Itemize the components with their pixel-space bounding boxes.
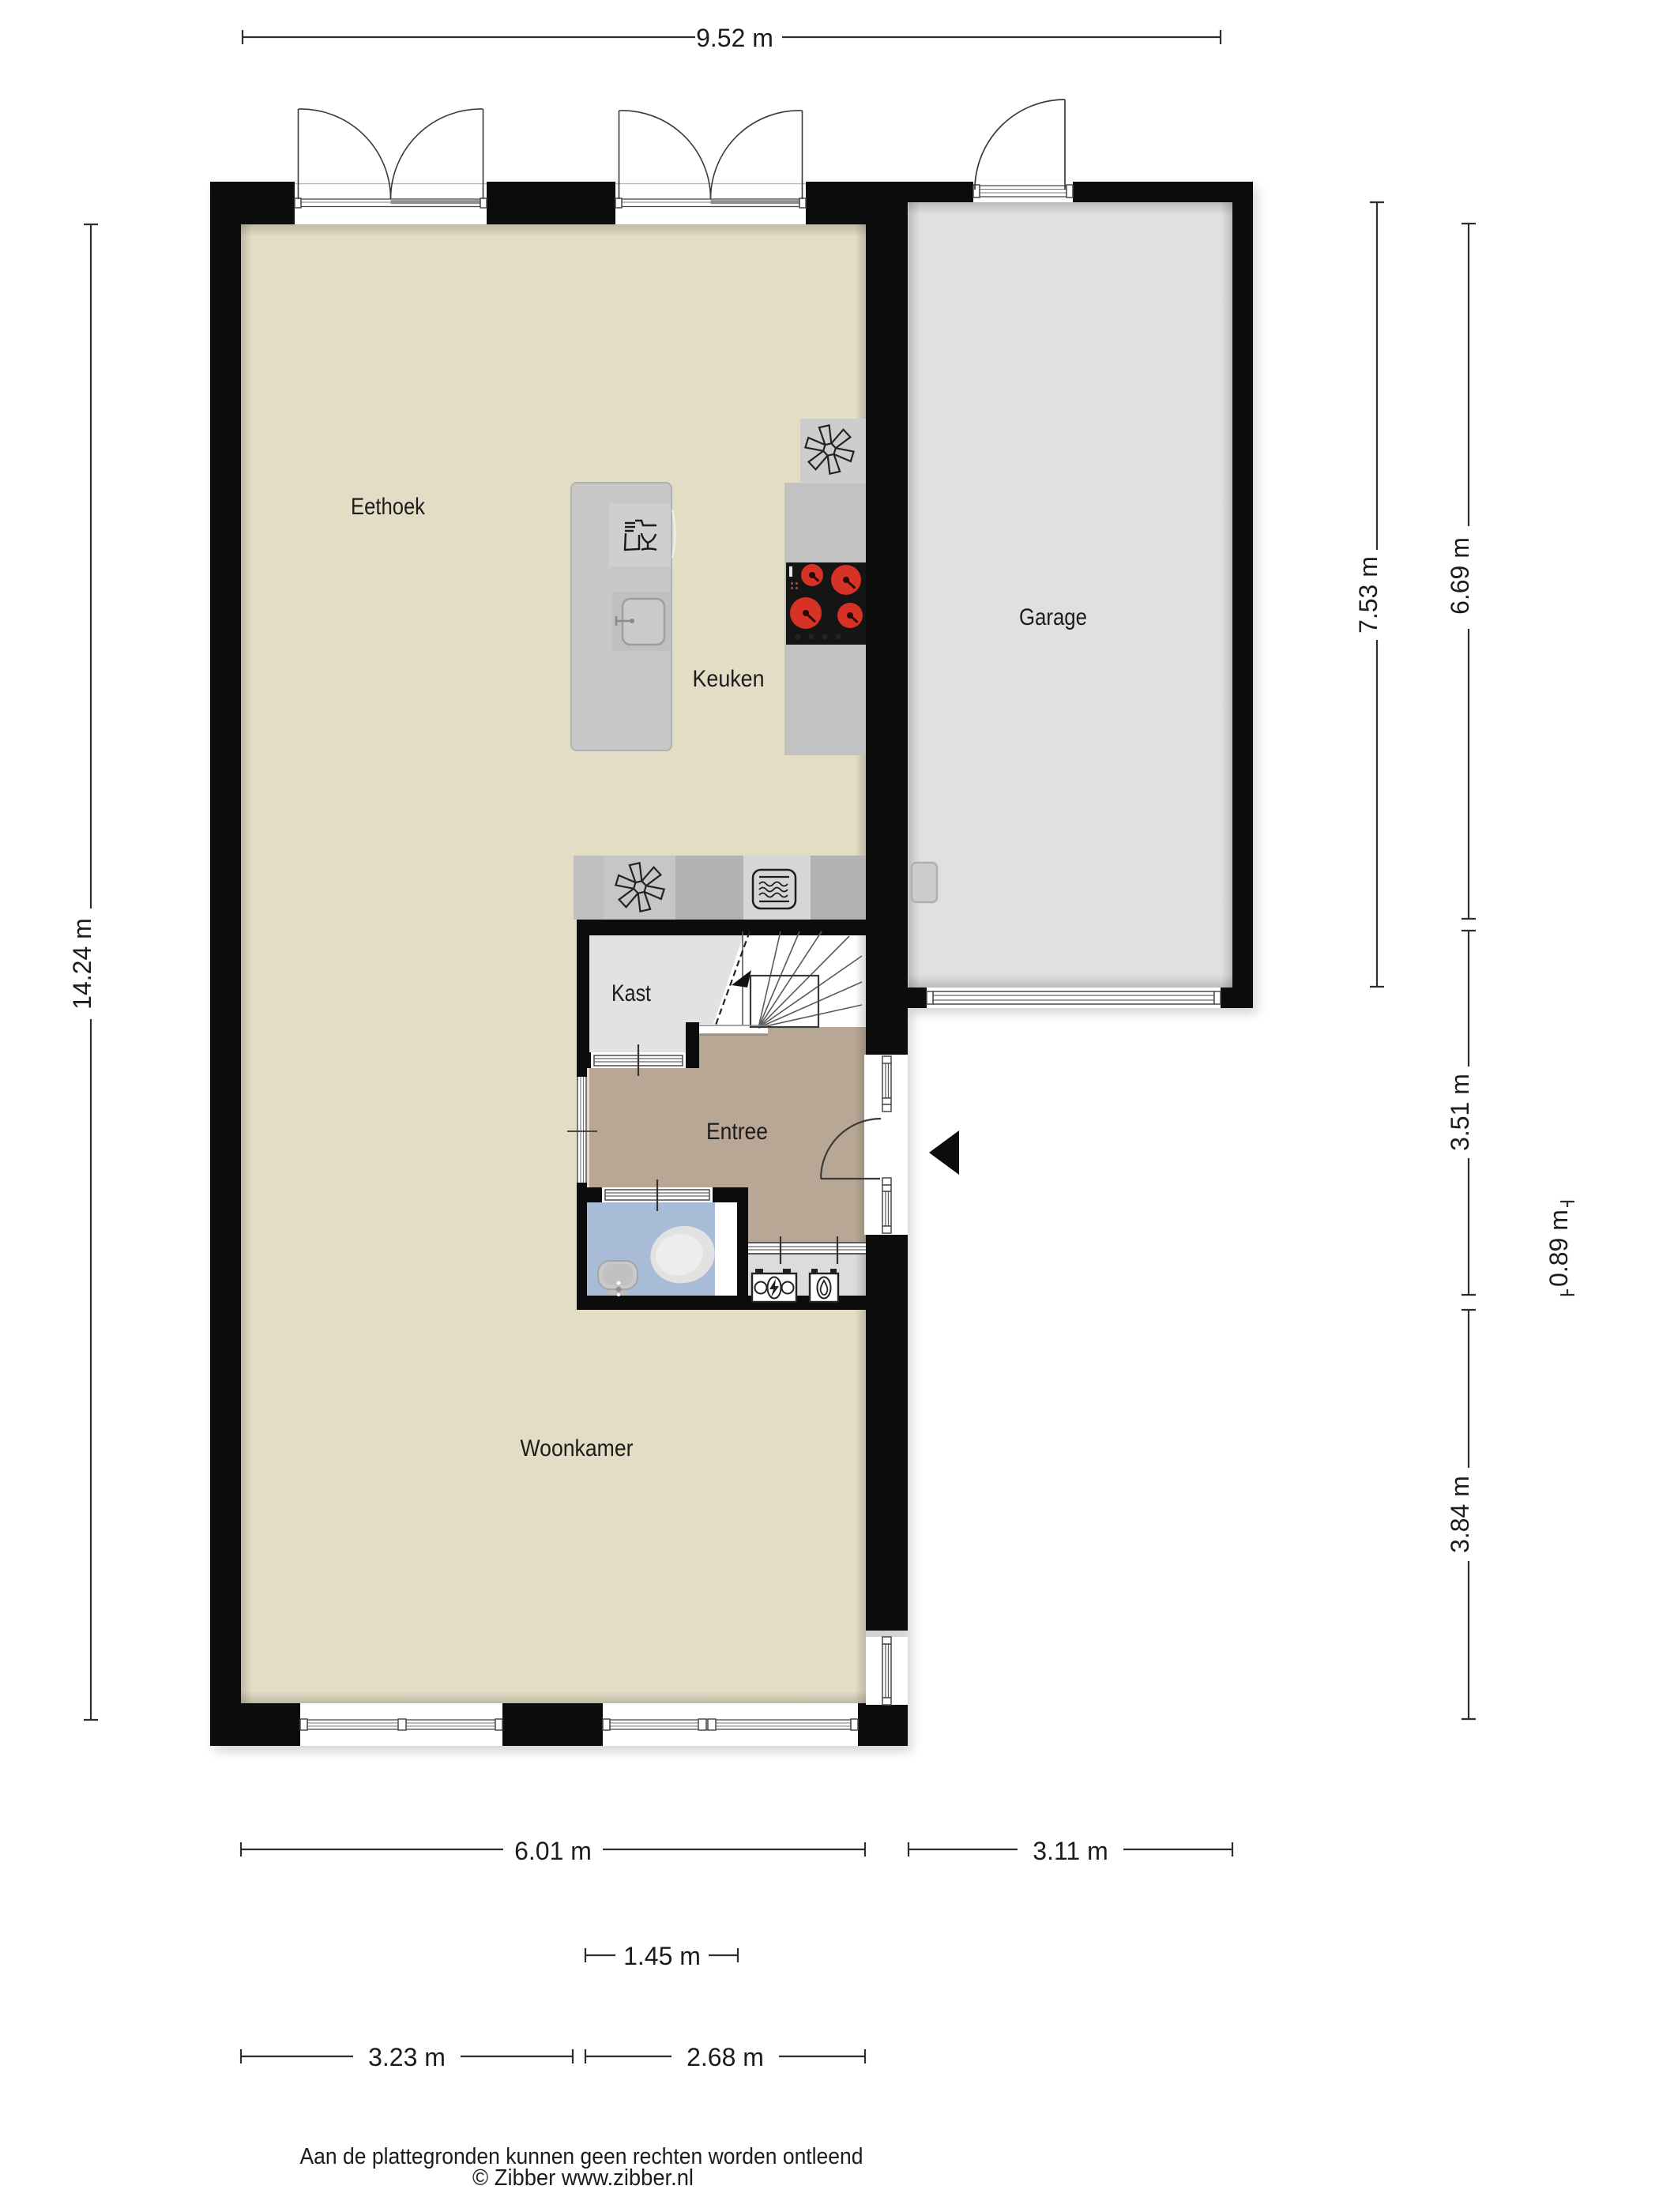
svg-text:Kast: Kast (611, 980, 652, 1006)
svg-text:3.84 m: 3.84 m (1446, 1476, 1474, 1553)
svg-text:Eethoek: Eethoek (351, 494, 426, 520)
svg-text:6.01 m: 6.01 m (514, 1837, 592, 1865)
svg-text:6.69 m: 6.69 m (1446, 537, 1474, 615)
svg-text:9.52 m: 9.52 m (696, 24, 773, 52)
svg-text:Woonkamer: Woonkamer (521, 1435, 634, 1461)
svg-text:© Zibber www.zibber.nl: © Zibber www.zibber.nl (472, 2165, 694, 2191)
svg-text:3.11 m: 3.11 m (1033, 1837, 1108, 1865)
svg-text:3.51 m: 3.51 m (1446, 1074, 1474, 1151)
svg-text:Entree: Entree (706, 1119, 768, 1145)
svg-text:3.23 m: 3.23 m (368, 2043, 446, 2071)
svg-text:Keuken: Keuken (693, 666, 765, 692)
svg-text:2.68 m: 2.68 m (687, 2043, 764, 2071)
svg-text:1.45 m: 1.45 m (623, 1942, 701, 1970)
svg-text:0.89 m: 0.89 m (1544, 1209, 1573, 1287)
svg-text:7.53 m: 7.53 m (1354, 556, 1382, 634)
svg-text:Garage: Garage (1019, 604, 1087, 630)
svg-text:14.24 m: 14.24 m (68, 918, 96, 1010)
